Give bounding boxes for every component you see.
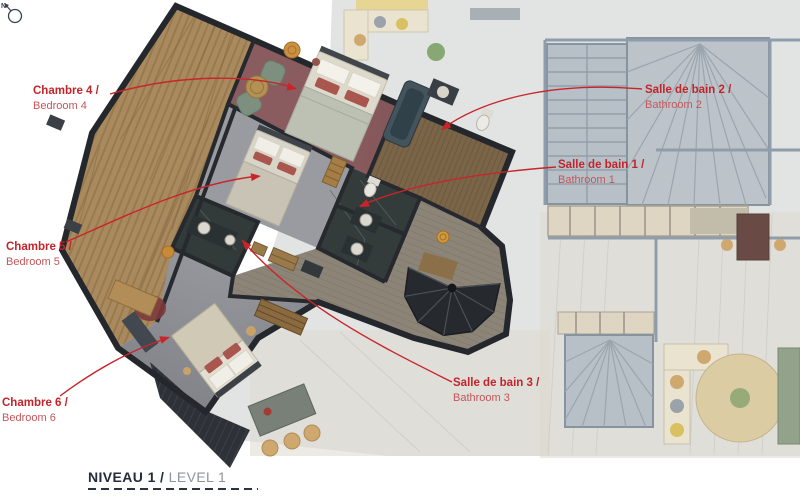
label-bathroom-2: Salle de bain 2 / Bathroom 2 — [645, 83, 731, 112]
label-bathroom-3-en: Bathroom 3 — [453, 391, 539, 405]
level-title: NIVEAU 1 / LEVEL 1 — [88, 469, 226, 485]
label-bathroom-2-fr: Salle de bain 2 / — [645, 84, 731, 96]
north-compass-icon: N — [0, 0, 26, 26]
label-bathroom-2-en: Bathroom 2 — [645, 98, 731, 112]
label-bedroom-4: Chambre 4 / Bedroom 4 — [33, 84, 99, 113]
label-bathroom-1-en: Bathroom 1 — [558, 173, 644, 187]
floor-plan-page: Chambre 4 / Bedroom 4 Chambre 5 / Bedroo… — [0, 0, 800, 498]
leader-bathroom-2 — [442, 87, 642, 129]
level-title-fr: NIVEAU 1 / — [88, 469, 164, 485]
apartment-detail — [0, 0, 800, 498]
label-bathroom-3-fr: Salle de bain 3 / — [453, 377, 539, 389]
spiral-stair — [405, 252, 500, 335]
title-dashed-underline — [88, 488, 258, 490]
bathroom-1-fixtures — [341, 176, 383, 263]
level-title-en: LEVEL 1 — [169, 469, 227, 485]
compass-north-letter: N — [1, 3, 6, 10]
label-bedroom-4-fr: Chambre 4 / — [33, 85, 99, 97]
label-bedroom-5-fr: Chambre 5 / — [6, 241, 72, 253]
label-bedroom-5-en: Bedroom 5 — [6, 255, 72, 269]
label-bedroom-5: Chambre 5 / Bedroom 5 — [6, 240, 72, 269]
label-bathroom-1-fr: Salle de bain 1 / — [558, 159, 644, 171]
label-bedroom-4-en: Bedroom 4 — [33, 99, 99, 113]
label-bathroom-3: Salle de bain 3 / Bathroom 3 — [453, 376, 539, 405]
label-bedroom-6-fr: Chambre 6 / — [2, 397, 68, 409]
label-bedroom-6: Chambre 6 / Bedroom 6 — [2, 396, 68, 425]
label-bedroom-6-en: Bedroom 6 — [2, 411, 68, 425]
label-bathroom-1: Salle de bain 1 / Bathroom 1 — [558, 158, 644, 187]
bathroom-3-fixtures — [186, 214, 238, 250]
terrace-planks — [75, 14, 232, 320]
